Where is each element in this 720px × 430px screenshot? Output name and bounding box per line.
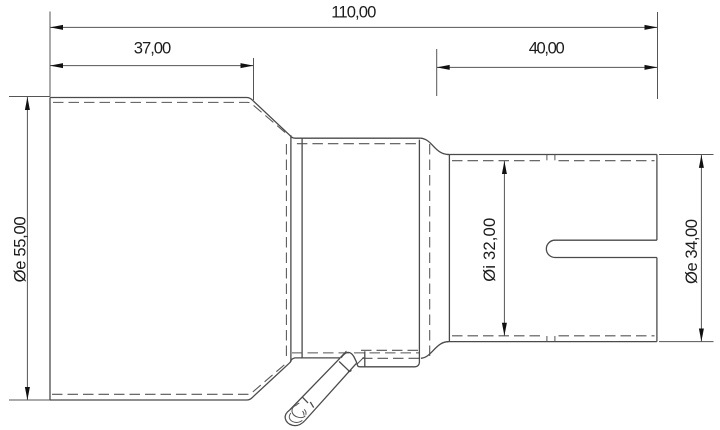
svg-text:Øe 55,00: Øe 55,00 [11,216,30,282]
svg-text:37,00: 37,00 [134,39,172,58]
svg-text:Øi 32,00: Øi 32,00 [480,218,499,282]
svg-text:40,00: 40,00 [529,39,565,58]
svg-text:Øe 34,00: Øe 34,00 [682,219,701,284]
svg-text:110,00: 110,00 [331,3,376,22]
